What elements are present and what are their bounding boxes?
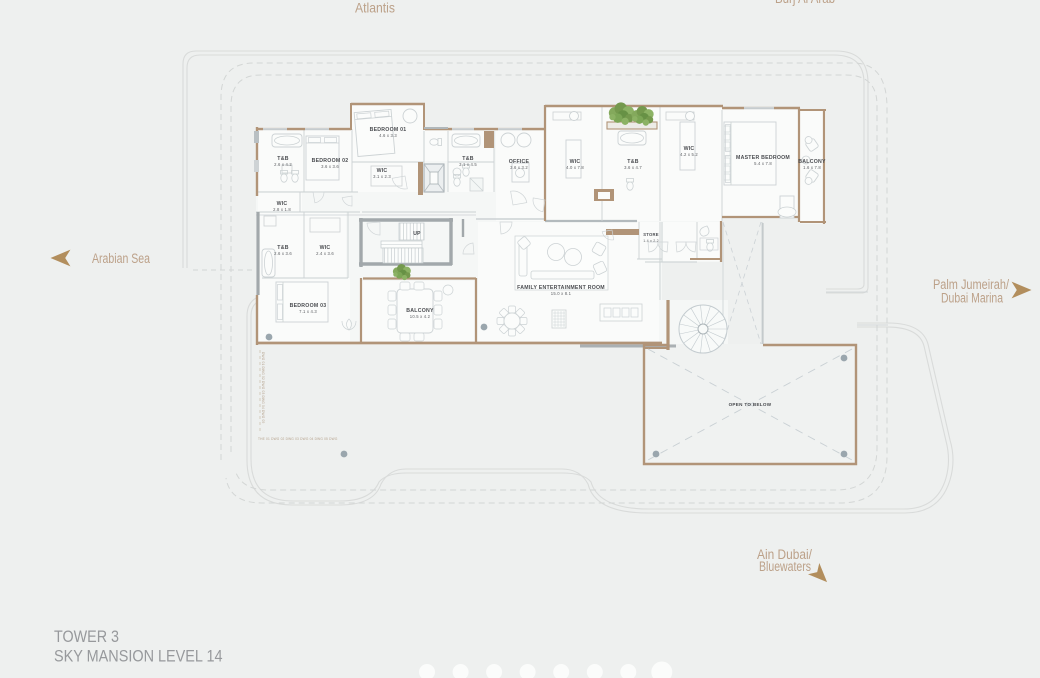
svg-text:3.6 x 3.2: 3.6 x 3.2 [510,165,528,170]
svg-text:TOWER 3: TOWER 3 [54,628,119,646]
svg-text:UP: UP [413,231,421,237]
svg-text:4.2 x 5.2: 4.2 x 5.2 [680,152,698,157]
svg-text:STORE: STORE [643,232,659,237]
svg-text:15.0 x 8.1: 15.0 x 8.1 [551,291,572,296]
svg-text:DWG 01 DWG 02 DWG 03 DWG 04 DW: DWG 01 DWG 02 DWG 03 DWG 04 DWG 05 [261,352,265,423]
svg-text:Burj Al Arab: Burj Al Arab [775,0,835,6]
svg-text:Atlantis: Atlantis [355,0,395,16]
svg-text:4.6 x 3.3: 4.6 x 3.3 [379,133,397,138]
svg-text:3.1 x 4.5: 3.1 x 4.5 [459,162,477,167]
svg-text:Bluewaters: Bluewaters [759,559,811,574]
svg-text:10.5 x 4.2: 10.5 x 4.2 [410,314,431,319]
svg-text:7.1 x 4.3: 7.1 x 4.3 [299,309,317,314]
svg-text:SKY MANSION LEVEL 14: SKY MANSION LEVEL 14 [54,648,223,666]
svg-text:2.6 x 3.6: 2.6 x 3.6 [274,251,292,256]
svg-text:3.6 x 4.7: 3.6 x 4.7 [624,165,642,170]
svg-text:OPEN TO BELOW: OPEN TO BELOW [729,402,772,407]
svg-text:Dubai Marina: Dubai Marina [941,291,1003,306]
svg-text:THE 01 DWG 02 DWG 03 DWG: THE 01 DWG 02 DWG 03 DWG 04 DWG 05 DWG [258,437,338,441]
svg-text:Arabian Sea: Arabian Sea [92,251,150,266]
svg-text:4.0 x 7.8: 4.0 x 7.8 [566,165,584,170]
svg-text:2.4 x 3.6: 2.4 x 3.6 [316,251,334,256]
svg-text:3.6 x 3.6: 3.6 x 3.6 [321,164,339,169]
svg-text:1.4 x 2.2: 1.4 x 2.2 [643,239,659,243]
svg-text:1.6 x 7.8: 1.6 x 7.8 [803,165,821,170]
svg-text:3.1 x 2.3: 3.1 x 2.3 [373,174,391,179]
svg-text:2.8 x 1.8: 2.8 x 1.8 [273,207,291,212]
svg-text:5.4 x 7.8: 5.4 x 7.8 [754,161,772,166]
svg-text:2.6 x 4.2: 2.6 x 4.2 [274,162,292,167]
